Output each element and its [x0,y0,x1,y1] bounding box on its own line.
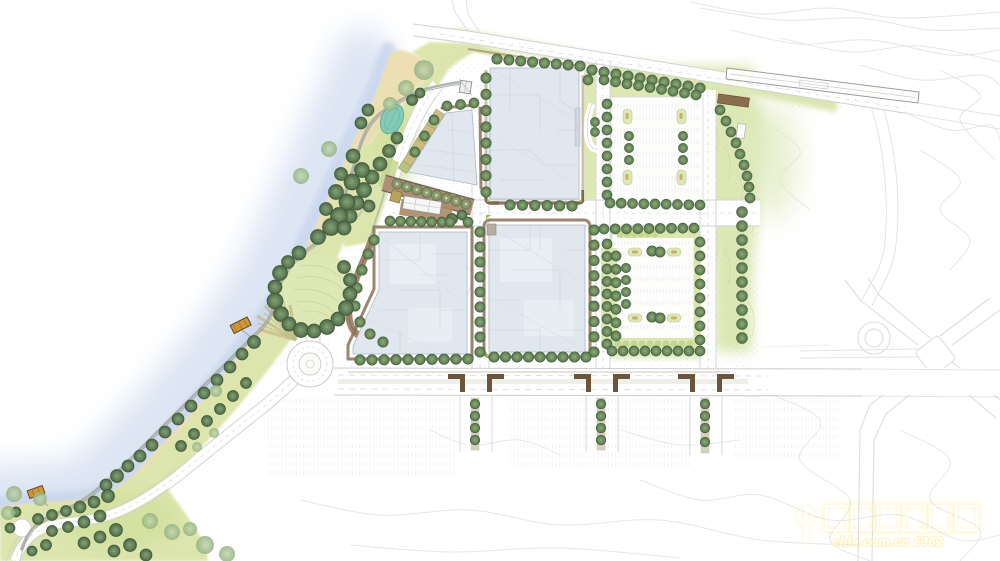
svg-text:chla.com.cn 6362: chla.com.cn 6362 [832,535,944,549]
